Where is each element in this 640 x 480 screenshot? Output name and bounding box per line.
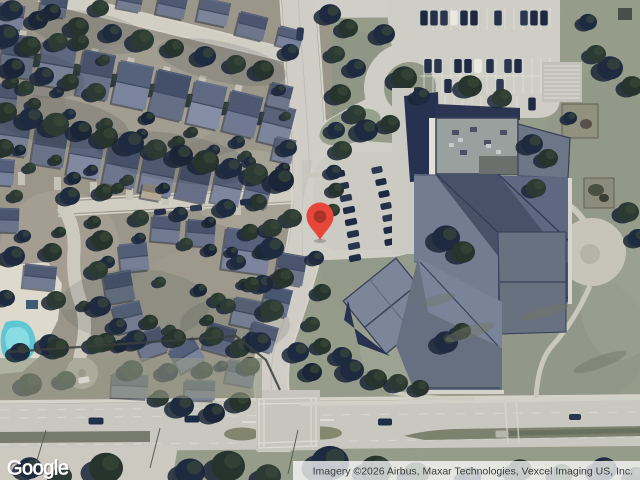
svg-text:Google: Google	[7, 458, 69, 480]
svg-text:Imagery ©2026 Airbus, Maxar Te: Imagery ©2026 Airbus, Maxar Technologies…	[313, 466, 633, 478]
